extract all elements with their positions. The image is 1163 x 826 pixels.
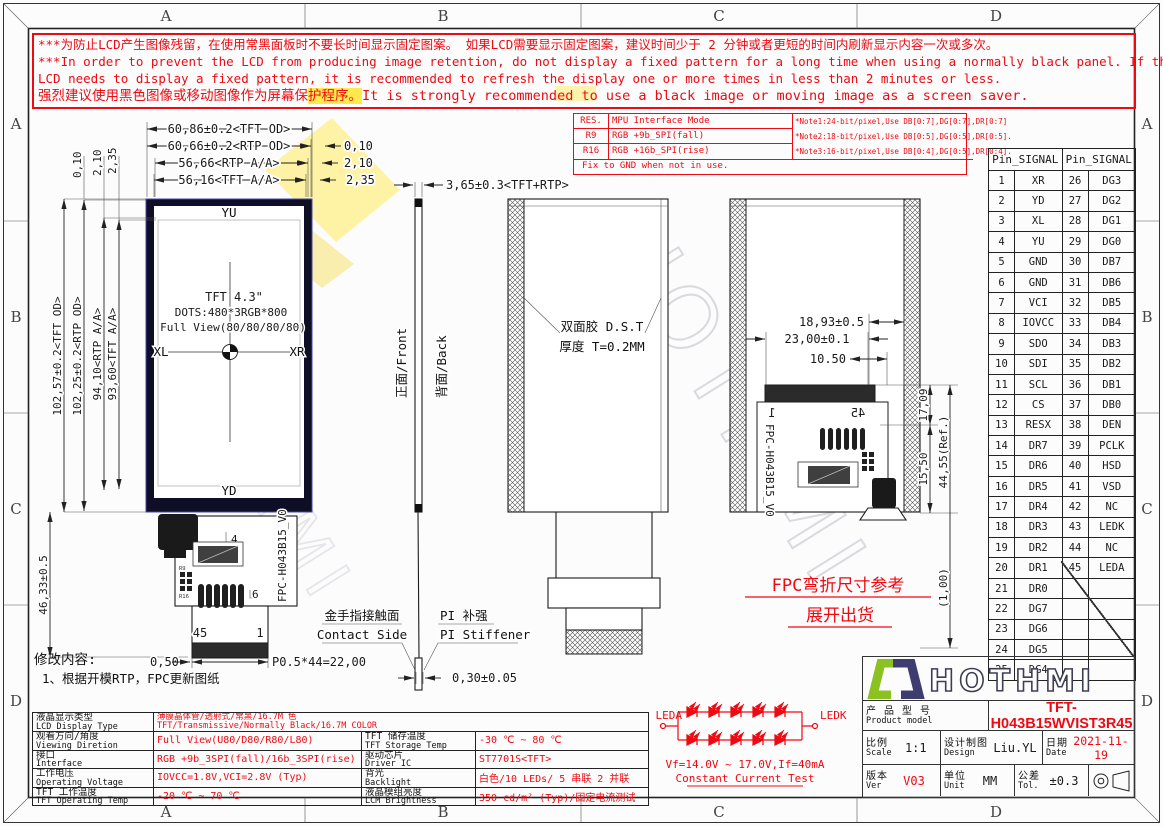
pin-table-row: 17DR442NC: [989, 497, 1136, 517]
spec-value: RGB +9b_3SPI(fall)/16b_3SPI(rise): [154, 750, 362, 769]
zone-bottom-d: D: [990, 803, 1002, 821]
pin-table-row: 13RESX38DEN: [989, 415, 1136, 435]
led-test-text: Constant Current Test: [675, 772, 814, 785]
table-row: 接口Interface RGB +9b_3SPI(fall)/16b_3SPI(…: [33, 750, 649, 769]
product-row: 产 品 型 号Product model TFT-H043B15WVIST3R4…: [863, 700, 1134, 730]
pin-number-cell: 3: [989, 211, 1015, 231]
table-row: 工作电压Operating Voltage IOVCC=1.8V,VCI=2.8…: [33, 769, 649, 788]
pin-header-right: Pin_SIGNAL: [1062, 149, 1136, 171]
pin-table-row: 15DR640HSD: [989, 456, 1136, 476]
pixel-format-notes: *Note1:24-bit/pixel,Use DB[0:7],DG[0:7],…: [792, 114, 966, 159]
pin-number-cell: 30: [1062, 252, 1088, 272]
spec-label: TFT 工作温度TFT Operating Temp: [33, 787, 154, 806]
dim-tft-aa-width: 56,16<TFT A/A>: [178, 173, 279, 187]
interface-mode-notes: RES. MPU Interface Mode R9 RGB +9b_SPI(f…: [573, 113, 967, 175]
led-circuit: LEDA LEDK Vf=14.0V ~ 17.0V,If=40mA Const…: [656, 702, 847, 786]
pin-signal-cell: IOVCC: [1015, 313, 1063, 333]
product-model: TFT-H043B15WVIST3R45: [989, 700, 1134, 732]
fpc-part-number: FPC-H043B15_V0: [276, 509, 289, 602]
dim-rtp-aa-height: 94,10<RTP A/A>: [91, 307, 104, 400]
pin-signal-cell: DEN: [1088, 415, 1136, 435]
revision-item: 1、根据开模RTP，FPC更新图纸: [42, 671, 220, 686]
unit-cell: 单位Unit MM: [941, 765, 1015, 796]
table-row: TFT 工作温度TFT Operating Temp -20 ℃ ~ 70 ℃ …: [33, 787, 649, 806]
spec-value: Full View(U80/D80/R80/L80): [154, 732, 362, 751]
fpc-bend-note-line2: 展开出货: [806, 606, 874, 626]
pin-number-cell: 36: [1062, 374, 1088, 394]
pin-number-cell: 40: [1062, 456, 1088, 476]
spec-label: TFT 储存温度TFT Storage Temp: [362, 732, 476, 751]
led-cathode-label: LEDK: [820, 709, 847, 722]
pin-number-cell: 41: [1062, 476, 1088, 496]
highlighted-text: 护程序。: [308, 88, 362, 104]
design-cell: 设计制图Design Liu.YL: [941, 731, 1043, 764]
pin-number-cell: 29: [1062, 232, 1088, 252]
pin-signal-cell: CS: [1015, 395, 1063, 415]
pin-signal-cell: DB7: [1088, 252, 1136, 272]
note-line: *Note2:18-bit/pixel,Use DB[0:5],DG[0:5],…: [793, 129, 966, 144]
table-row: R9 RGB +9b_SPI(fall): [574, 129, 792, 144]
back-pin45-label: 45: [851, 406, 865, 420]
fpc-pin1-label: 1: [256, 626, 263, 640]
panel-label-yu: YU: [221, 205, 236, 220]
dim-rtp-od-height: 102,25±0.2<RTP OD>: [71, 296, 84, 416]
specification-table: 液晶显示类型LCD Display Type 薄膜晶体管/透射式/常黑/16.7…: [32, 712, 648, 806]
dim-tft-aa-height: 93,60<TFT A/A>: [106, 307, 119, 400]
pin-table-row: 19DR244NC: [989, 538, 1136, 558]
dim-back-1893: 18,93±0.5: [799, 315, 864, 329]
pin-signal-cell: DB4: [1088, 313, 1136, 333]
fpc-bend-note: FPC弯折尺寸参考 展开出货: [745, 576, 931, 627]
spec-label: 液晶模组亮度LCM Brightness: [362, 787, 476, 806]
version-value: V03: [888, 774, 940, 788]
zone-left-c: C: [10, 500, 21, 518]
pin-signal-cell: RESX: [1015, 415, 1063, 435]
fpc-folded-connector: [158, 514, 198, 550]
back-view-dst: 双面胶 D.S.T 厚度 T=0.2MM: [508, 199, 668, 654]
dst-fpc-pad: [566, 630, 642, 654]
dim-rtp-aa-width: 56,66<RTP A/A>: [178, 156, 279, 170]
spec-label: 接口Interface: [33, 750, 154, 769]
spec-label: 工作电压Operating Voltage: [33, 769, 154, 788]
side-back-label: 背面/Back: [434, 335, 449, 398]
pin-signal-cell: NC: [1088, 538, 1136, 558]
back-fpc-part-number: FPC-H043B15_V0: [763, 424, 776, 517]
hothmi-logo: HOTHMI: [867, 659, 1131, 699]
pin-number-cell: 1: [989, 171, 1015, 191]
zone-right-d: D: [1141, 692, 1153, 710]
pin-table-row: 11SCL36DB1: [989, 374, 1136, 394]
spec-value: 白色/10 LEDs/ 5 串联 2 并联: [476, 769, 649, 788]
pin-signal-cell: DR3: [1015, 517, 1063, 537]
dim-back-1050: 10.50: [810, 352, 846, 366]
zone-top-d: D: [990, 7, 1002, 25]
pin-number-cell: 19: [989, 538, 1015, 558]
pin-number-cell: 12: [989, 395, 1015, 415]
pin-number-cell: 17: [989, 497, 1015, 517]
dim-vgap-235: 2,35: [106, 148, 119, 175]
pin-signal-cell: DR6: [1015, 456, 1063, 476]
spec-value: -20 ℃ ~ 70 ℃: [154, 787, 362, 806]
pin-signal-cell: YD: [1015, 191, 1063, 211]
zone-right-c: C: [1141, 500, 1152, 518]
pin-number-cell: 22: [989, 599, 1015, 619]
dim-tft-od-height: 102,57±0.2<TFT OD>: [51, 296, 64, 416]
back-folded-connector: [872, 478, 896, 508]
pin-number-cell: 43: [1062, 517, 1088, 537]
pin-signal-cell: DB6: [1088, 272, 1136, 292]
logo-brand-text: HOTHMI: [929, 664, 1096, 699]
pin-table-row: 7VCI32DB5: [989, 293, 1136, 313]
dim-vgap-010: 0,10: [71, 152, 84, 179]
pin-table-row: 1XR26DG3: [989, 171, 1136, 191]
pin-signal-cell: LEDK: [1088, 517, 1136, 537]
zone-top-b: B: [437, 7, 448, 25]
panel-label-xr: XR: [289, 344, 305, 359]
zone-top-a: A: [160, 7, 172, 25]
product-model-cell: TFT-H043B15WVIST3R45: [989, 701, 1134, 730]
pin-signal-cell: SDO: [1015, 334, 1063, 354]
dim-gap-235: 2,35: [346, 173, 375, 187]
pin-table-row: 4YU29DG0: [989, 232, 1136, 252]
pin-signal-cell: DR1: [1015, 558, 1063, 578]
pin-signal-cell: GND: [1015, 272, 1063, 292]
spec-label: 液晶显示类型LCD Display Type: [33, 713, 154, 732]
pin-signal-cell: DG3: [1088, 171, 1136, 191]
pin-table-row: 8IOVCC33DB4: [989, 313, 1136, 333]
pin-number-cell: 32: [1062, 293, 1088, 313]
pin-table-row: 5GND30DB7: [989, 252, 1136, 272]
pin-signal-cell: GND: [1015, 252, 1063, 272]
dim-back-2300: 23,00±0.1: [784, 332, 849, 346]
pin-number-cell: 44: [1062, 538, 1088, 558]
projection-symbol-icon: [1092, 769, 1132, 793]
pin-number-cell: 27: [1062, 191, 1088, 211]
dim-fpc-pitch: P0.5*44=22,00: [272, 655, 366, 669]
zone-left-b: B: [10, 308, 21, 326]
projection-symbol-cell: [1089, 765, 1134, 796]
pin-signal-cell: DB5: [1088, 293, 1136, 313]
zone-left-d: D: [10, 692, 22, 710]
pin-number-cell: 35: [1062, 354, 1088, 374]
pin-signal-cell: SDI: [1015, 354, 1063, 374]
pin-number-cell: 38: [1062, 415, 1088, 435]
pin-number-cell: 23: [989, 619, 1015, 639]
dim-rtp-od-width: 60,66±0.2<RTP OD>: [168, 139, 291, 153]
pin-number-cell: 11: [989, 374, 1015, 394]
contact-side-en: Contact Side: [317, 627, 407, 642]
pin-table-row: 9SDO34DB3: [989, 334, 1136, 354]
pin-signal-cell: DR0: [1015, 578, 1063, 598]
pin-signal-cell: DR2: [1015, 538, 1063, 558]
mode-value: RGB +16b_SPI(rise): [609, 144, 792, 159]
dim-back-100: (1,00): [937, 568, 950, 608]
pin-signal-cell: NC: [1088, 497, 1136, 517]
spec-label: 背光Backlight: [362, 769, 476, 788]
spec-value: 350 cd/m² (Typ)/固定电流测试: [476, 787, 649, 806]
logo-mark-green: [873, 663, 899, 695]
pin-signal-cell: VCI: [1015, 293, 1063, 313]
pin-signal-cell: DG6: [1015, 619, 1063, 639]
table-row: 观看方向/角度Viewing Diretion Full View(U80/D8…: [33, 732, 649, 751]
pin-signal-cell: DB2: [1088, 354, 1136, 374]
panel-size-text: TFT 4.3": [205, 290, 263, 304]
fpc-gold-fingers: [192, 643, 268, 658]
pin-signal-cell: DG0: [1088, 232, 1136, 252]
logo-row: HOTHMI: [863, 657, 1134, 700]
panel-dots-text: DOTS:480*3RGB*800: [175, 306, 288, 319]
warning-line-screensaver: 强烈建议使用黑色图像或移动图像作为屏幕保护程序。It is strongly r…: [38, 87, 1130, 105]
fpc-label-r16: R16: [179, 594, 189, 600]
tolerance-value: ±0.3: [1040, 774, 1088, 788]
fpc-bend-note-line1: FPC弯折尺寸参考: [772, 576, 905, 596]
ver-unit-tol-row: 版本Ver V03 单位Unit MM 公差Tol. ±0.3: [863, 764, 1134, 796]
pin-number-cell: 6: [989, 272, 1015, 292]
pin-number-cell: 7: [989, 293, 1015, 313]
note-line: *Note3:16-bit/pixel,Use DB[0:4],DG[0:5],…: [793, 144, 966, 159]
pin-table-row: 16DR541VSD: [989, 476, 1136, 496]
unit-value: MM: [966, 774, 1014, 788]
pin-number-cell: 26: [1062, 171, 1088, 191]
pin-number-cell: 42: [1062, 497, 1088, 517]
pin-number-cell: 14: [989, 436, 1015, 456]
designer-name: Liu.YL: [988, 741, 1042, 755]
pin-number-cell: 18: [989, 517, 1015, 537]
pi-stiffener-cn: PI 补强: [440, 608, 488, 623]
product-label: 产 品 型 号Product model: [863, 701, 989, 730]
pin-number-cell: 34: [1062, 334, 1088, 354]
spec-value: IOVCC=1.8V,VCI=2.8V (Typ): [154, 769, 362, 788]
dst-label-line2: 厚度 T=0.2MM: [559, 339, 644, 354]
pi-stiffener-en: PI Stiffener: [440, 627, 531, 642]
contact-side-cn: 金手指接触面: [324, 608, 399, 623]
version-cell: 版本Ver V03: [863, 765, 941, 796]
zone-bottom-c: C: [713, 803, 724, 821]
dim-back-1709: 17,09: [917, 388, 930, 421]
pin-signal-cell: XL: [1015, 211, 1063, 231]
panel-label-yd: YD: [221, 483, 236, 498]
pin-number-cell: 4: [989, 232, 1015, 252]
pin-number-cell: 13: [989, 415, 1015, 435]
dim-gap-210: 2,10: [344, 156, 373, 170]
logo-mark-navy: [893, 663, 919, 695]
interface-mode-table: RES. MPU Interface Mode R9 RGB +9b_SPI(f…: [574, 114, 792, 159]
dim-fpc-thickness: 0,30±0.05: [452, 671, 517, 685]
pin-number-cell: 16: [989, 476, 1015, 496]
back-pin1-label: 1: [768, 406, 775, 420]
spec-value: -30 ℃ ~ 80 ℃: [476, 732, 649, 751]
pin-number-cell: 8: [989, 313, 1015, 333]
mode-key: R16: [574, 144, 609, 159]
title-block: HOTHMI 产 品 型 号Product model TFT-H043B15W…: [862, 656, 1135, 798]
tolerance-cell: 公差Tol. ±0.3: [1015, 765, 1089, 796]
pin-signal-cell: XR: [1015, 171, 1063, 191]
zone-top-c: C: [713, 7, 724, 25]
dim-side-thickness: 3,65±0.3<TFT+RTP>: [446, 178, 569, 192]
date-cell: 日期Date 2021-11-19: [1043, 731, 1134, 764]
pin-number-cell: 21: [989, 578, 1015, 598]
date-value: 2021-11-19: [1068, 734, 1134, 762]
mode-value: RGB +9b_SPI(fall): [609, 129, 792, 143]
led-vf-text: Vf=14.0V ~ 17.0V,If=40mA: [666, 758, 825, 771]
back-gold-fingers: [765, 385, 875, 402]
pin-signal-cell: HSD: [1088, 456, 1136, 476]
pin-number-cell: 15: [989, 456, 1015, 476]
pin-signal-cell: DB3: [1088, 334, 1136, 354]
warning-line-en1: ***In order to prevent the LCD from prod…: [38, 53, 1130, 70]
pin-signal-cell: VSD: [1088, 476, 1136, 496]
pin-number-cell: 28: [1062, 211, 1088, 231]
dst-label-line1: 双面胶 D.S.T: [561, 319, 644, 334]
pin-signal-cell: DR5: [1015, 476, 1063, 496]
dim-vgap-210: 2,10: [91, 150, 104, 177]
zone-right-a: A: [1141, 115, 1153, 133]
dim-back-1550: 15,50: [917, 452, 930, 485]
pin-number-cell: 33: [1062, 313, 1088, 333]
zone-right-b: B: [1141, 308, 1152, 326]
pin-signal-cell: DR4: [1015, 497, 1063, 517]
pin-number-cell: 9: [989, 334, 1015, 354]
scale-cell: 比例Scale 1:1: [863, 731, 941, 764]
table-row: RES. MPU Interface Mode: [574, 114, 792, 129]
side-front-label: 正面/Front: [394, 328, 409, 398]
pin-signal-cell: DB0: [1088, 395, 1136, 415]
spec-value: 薄膜晶体管/透射式/常黑/16.7M 色TFT/Transmissive/Nor…: [154, 713, 649, 732]
spec-label: 观看方向/角度Viewing Diretion: [33, 732, 154, 751]
pin-number-cell: 37: [1062, 395, 1088, 415]
dim-gap-010: 0,10: [344, 139, 373, 153]
pin-table-row: 12CS37DB0: [989, 395, 1136, 415]
warning-line-en2: LCD needs to display a fixed pattern, it…: [38, 70, 1130, 87]
pin-number-cell: 2: [989, 191, 1015, 211]
pin-signal-cell: DB1: [1088, 374, 1136, 394]
fpc-pin45-label: 45: [193, 626, 207, 640]
pin-number-cell: 20: [989, 558, 1015, 578]
panel-view-text: Full View(80/80/80/80): [160, 321, 306, 334]
pin-number-cell: 39: [1062, 436, 1088, 456]
dim-tft-od-width: 60,86±0.2<TFT OD>: [168, 122, 291, 136]
pin-table-header: Pin_SIGNAL Pin_SIGNAL: [989, 149, 1136, 171]
gnd-note: Fix to GND when not in use.: [574, 159, 973, 174]
pin-signal-cell: DG2: [1088, 191, 1136, 211]
table-row: 液晶显示类型LCD Display Type 薄膜晶体管/透射式/常黑/16.7…: [33, 713, 649, 732]
scale-design-date-row: 比例Scale 1:1 设计制图Design Liu.YL 日期Date 202…: [863, 730, 1134, 764]
pin-signal-cell: DG7: [1015, 599, 1063, 619]
pin-signal-cell: YU: [1015, 232, 1063, 252]
empty-cells-diagonal: [1061, 561, 1134, 657]
scale-value: 1:1: [892, 741, 940, 755]
mode-key: R9: [574, 129, 609, 143]
pin-table-row: 10SDI35DB2: [989, 354, 1136, 374]
revision-title: 修改内容:: [34, 651, 96, 668]
pin-signal-cell: PCLK: [1088, 436, 1136, 456]
dim-fpc-length: 46,33±0.5: [37, 555, 50, 615]
pin-number-cell: 31: [1062, 272, 1088, 292]
spec-label: 驱动芯片Driver IC: [362, 750, 476, 769]
note-line: *Note1:24-bit/pixel,Use DB[0:7],DG[0:7],…: [793, 114, 966, 129]
pin-table-row: 2YD27DG2: [989, 191, 1136, 211]
fpc-label-r9: R9: [179, 566, 186, 572]
zone-left-a: A: [10, 115, 22, 133]
spec-value: ST7701S<TFT>: [476, 750, 649, 769]
pin-header-left: Pin_SIGNAL: [989, 149, 1063, 171]
pin-table-row: 14DR739PCLK: [989, 436, 1136, 456]
pin-number-cell: 5: [989, 252, 1015, 272]
pin-signal-cell: DG1: [1088, 211, 1136, 231]
table-row: R16 RGB +16b_SPI(rise): [574, 144, 792, 159]
panel-label-xl: XL: [153, 344, 168, 359]
image-retention-warning: ***为防止LCD产生图像残留，在使用常黑面板时不要长时间显示固定图案。 如果L…: [32, 33, 1136, 109]
warning-line-cn: ***为防止LCD产生图像残留，在使用常黑面板时不要长时间显示固定图案。 如果L…: [38, 36, 1130, 53]
fpc-label-6: 6: [252, 588, 259, 601]
pin-signal-cell: SCL: [1015, 374, 1063, 394]
pin-signal-cell: DR7: [1015, 436, 1063, 456]
pin-table-row: 3XL28DG1: [989, 211, 1136, 231]
mode-key: RES.: [574, 114, 609, 128]
pin-table-row: 18DR343LEDK: [989, 517, 1136, 537]
dim-back-4455: 44,55(Ref.): [937, 416, 950, 489]
mode-value: MPU Interface Mode: [609, 114, 792, 128]
pin-table-row: 6GND31DB6: [989, 272, 1136, 292]
pin-number-cell: 10: [989, 354, 1015, 374]
front-view: YU YD XL XR TFT 4.3" DOTS:480*3RGB*800 F…: [146, 199, 312, 512]
